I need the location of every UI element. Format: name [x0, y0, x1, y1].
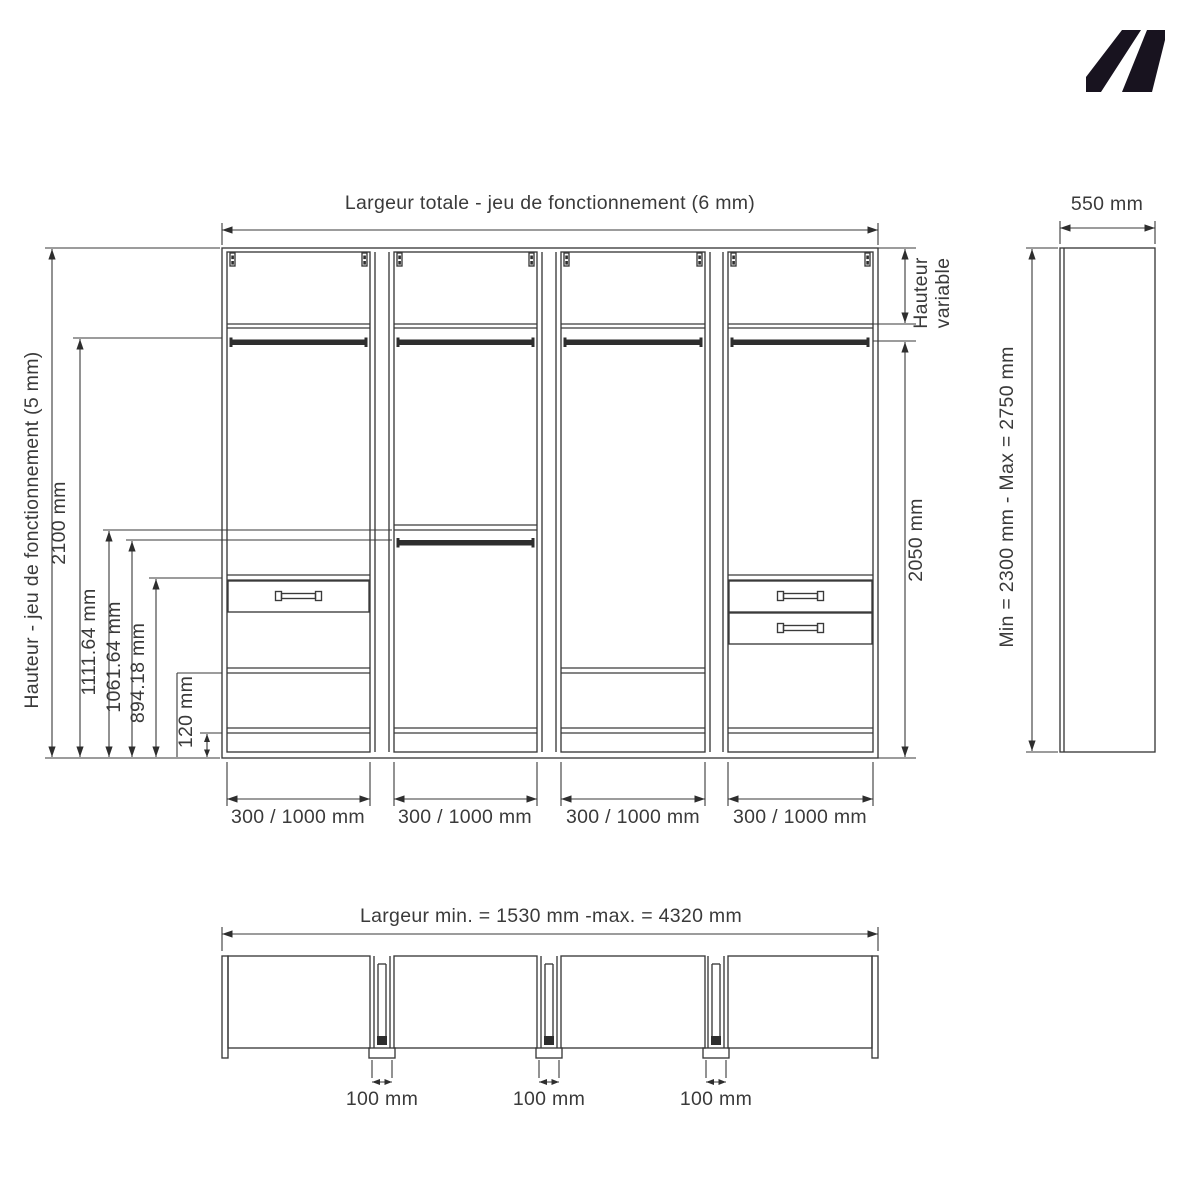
plan-junction-1	[369, 956, 395, 1058]
junction-foot	[369, 1048, 395, 1058]
dim-height-range: Min = 2300 mm - Max = 2750 mm	[996, 248, 1058, 752]
dim-total-width: Largeur totale - jeu de fonctionnement (…	[222, 192, 878, 245]
hanging-rail	[566, 340, 700, 346]
dim-1111: 1111.64 mm	[78, 530, 392, 757]
drawer-handle	[276, 592, 322, 601]
drawer	[729, 581, 872, 612]
hanging-rail	[733, 340, 868, 346]
dim-894-label: 894.18 mm	[127, 623, 149, 723]
plan-junction-3	[703, 956, 729, 1058]
dim-depth: 550 mm	[1060, 193, 1155, 244]
wardrobe-technical-drawing: Largeur totale - jeu de fonctionnement (…	[0, 0, 1200, 1201]
dim-2100-label: 2100 mm	[48, 481, 70, 564]
drawer	[729, 613, 872, 644]
dim-hauteur-variable-label-1: Hauteur	[910, 257, 932, 329]
dim-height-range-label: Min = 2300 mm - Max = 2750 mm	[996, 346, 1018, 647]
dim-2050: 2050 mm	[873, 341, 927, 758]
dim-gap-1: 100 mm	[346, 1060, 418, 1110]
dim-1111-label: 1111.64 mm	[78, 588, 100, 695]
hanging-rail	[232, 340, 365, 346]
hanging-rail-mid	[399, 540, 532, 546]
plan-view: Largeur min. = 1530 mm -max. = 4320 mm	[222, 905, 878, 1110]
dim-1061-label: 1061.64 mm	[103, 601, 125, 712]
side-view-panel	[1060, 248, 1155, 752]
side-view: 550 mm Min = 2300 mm - Max = 2750 mm	[996, 193, 1155, 752]
dim-depth-label: 550 mm	[1071, 193, 1143, 215]
dim-hauteur-variable: Hauteur variable	[873, 248, 954, 329]
dim-width-range-label: Largeur min. = 1530 mm -max. = 4320 mm	[360, 905, 742, 927]
junction-foot	[536, 1048, 562, 1058]
dim-section-width-label: 300 / 1000 mm	[398, 806, 532, 828]
drawer-handle	[778, 592, 824, 601]
dim-gap-3: 100 mm	[680, 1060, 752, 1110]
dim-section-width-label: 300 / 1000 mm	[733, 806, 867, 828]
dim-120-label: 120 mm	[175, 676, 197, 748]
front-section-4	[728, 253, 873, 733]
dim-overall-height-label: Hauteur - jeu de fonctionnement (5 mm)	[21, 351, 43, 708]
drawer	[228, 581, 369, 612]
dim-total-width-label: Largeur totale - jeu de fonctionnement (…	[345, 192, 755, 214]
dim-section-widths: 300 / 1000 mm 300 / 1000 mm 300 / 1000 m…	[227, 762, 873, 828]
front-section-1	[227, 253, 370, 733]
dim-120: 120 mm	[175, 676, 222, 757]
front-section-2	[394, 253, 537, 733]
dim-gap-label: 100 mm	[680, 1088, 752, 1110]
dim-gap-2: 100 mm	[513, 1060, 585, 1110]
dim-section-width-label: 300 / 1000 mm	[231, 806, 365, 828]
dim-gap-label: 100 mm	[346, 1088, 418, 1110]
kz-logo-icon	[1086, 30, 1165, 92]
junction-foot	[703, 1048, 729, 1058]
dim-2050-label: 2050 mm	[905, 498, 927, 581]
plan-junction-2	[536, 956, 562, 1058]
dim-hauteur-variable-label-2: variable	[932, 258, 954, 329]
front-section-3	[561, 253, 705, 733]
hanging-rail	[399, 340, 532, 346]
dim-gap-label: 100 mm	[513, 1088, 585, 1110]
dim-section-width-label: 300 / 1000 mm	[566, 806, 700, 828]
dim-width-range: Largeur min. = 1530 mm -max. = 4320 mm	[222, 905, 878, 951]
drawer-handle	[778, 624, 824, 633]
front-view: Largeur totale - jeu de fonctionnement (…	[21, 192, 954, 828]
